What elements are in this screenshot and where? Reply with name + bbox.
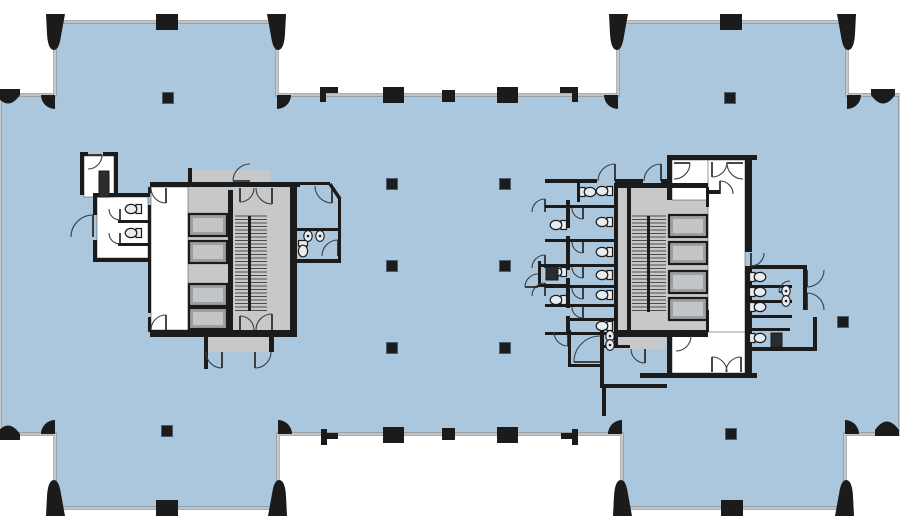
core-gray-area — [192, 170, 270, 183]
toilet-part — [550, 295, 562, 304]
wall-segment — [538, 284, 566, 287]
interior-column — [500, 343, 511, 354]
sink-drain — [609, 335, 612, 338]
toilet-part — [754, 333, 766, 342]
interior-column — [387, 343, 398, 354]
wall-segment — [148, 187, 151, 193]
wall-segment — [600, 330, 604, 388]
floor-plan — [0, 0, 900, 530]
wall-segment — [114, 152, 118, 195]
interior-column — [726, 429, 737, 440]
toilet-part — [754, 287, 766, 296]
toilet-icon — [298, 241, 307, 257]
wall-segment — [721, 500, 743, 516]
stair-divider — [248, 216, 251, 311]
wall-segment — [497, 427, 518, 443]
toilet-icon — [750, 302, 766, 311]
toilet-part — [125, 228, 137, 237]
wall-segment — [615, 183, 708, 188]
wall-segment — [538, 261, 541, 287]
stair-divider — [647, 216, 650, 312]
wall-segment — [545, 205, 614, 208]
wall-segment — [118, 220, 148, 223]
interior-column — [838, 317, 849, 328]
wall-segment — [752, 347, 817, 351]
wall-segment — [640, 373, 757, 378]
toilet-icon — [125, 204, 141, 213]
wall-segment — [228, 190, 233, 330]
toilet-icon — [750, 272, 766, 281]
toilet-part — [754, 272, 766, 281]
toilet-part — [550, 220, 562, 229]
wall-segment — [93, 193, 97, 215]
elevator-car-interior — [673, 219, 703, 233]
interior-column — [500, 179, 511, 190]
toilet-part — [596, 247, 608, 256]
toilet-part — [298, 245, 307, 257]
wall-segment — [602, 388, 606, 416]
wall-segment — [614, 183, 618, 345]
wall-segment — [269, 337, 274, 352]
wall-segment — [615, 330, 708, 337]
wall-segment — [545, 239, 614, 242]
sink-drain — [785, 300, 788, 303]
wall-segment — [297, 182, 330, 185]
toilet-icon — [596, 270, 612, 279]
floor-plan-canvas — [0, 0, 900, 530]
wall-segment — [667, 155, 757, 160]
sink-drain — [307, 235, 310, 238]
core-gray-area — [269, 187, 290, 330]
wall-segment — [566, 318, 614, 321]
interior-column — [387, 179, 398, 190]
elevator-car-interior — [193, 218, 223, 232]
wall-segment — [813, 317, 817, 351]
wall-segment — [93, 258, 150, 262]
elevator-car-interior — [673, 246, 703, 260]
wall-segment — [752, 328, 790, 331]
wall-segment — [297, 259, 341, 263]
wall-segment — [80, 152, 88, 156]
toilet-icon — [596, 247, 612, 256]
elevator-car-interior — [193, 288, 223, 302]
toilet-icon — [550, 295, 566, 304]
wall-segment — [150, 330, 297, 337]
wall-segment — [708, 190, 720, 194]
toilet-part — [596, 321, 608, 330]
toilet-icon — [750, 287, 766, 296]
wall-segment — [752, 315, 792, 318]
toilet-part — [584, 187, 596, 196]
interior-column — [500, 261, 511, 272]
wall-segment — [600, 384, 667, 388]
interior-column — [162, 426, 173, 437]
toilet-part — [125, 204, 137, 213]
wall-segment — [572, 87, 578, 102]
interior-column — [725, 93, 736, 104]
sink-drain — [785, 290, 788, 293]
wall-segment — [720, 14, 742, 30]
room-white — [672, 332, 745, 373]
wall-segment — [745, 266, 752, 375]
wall-segment — [156, 500, 178, 516]
wall-segment — [667, 155, 672, 200]
toilet-part — [596, 186, 608, 195]
toilet-icon — [596, 290, 612, 299]
wall-segment — [667, 332, 672, 377]
toilet-icon — [125, 228, 141, 237]
toilet-icon — [596, 186, 612, 195]
wall-segment — [661, 179, 667, 183]
service-fixture — [771, 333, 782, 347]
wall-segment — [572, 429, 578, 445]
wall-segment — [80, 152, 84, 195]
wall-segment — [320, 87, 338, 93]
service-fixture — [546, 267, 558, 280]
wall-segment — [290, 182, 297, 337]
wall-segment — [615, 179, 643, 183]
wall-segment — [442, 90, 455, 102]
wall-segment — [568, 364, 600, 367]
interior-column — [387, 261, 398, 272]
toilet-part — [596, 290, 608, 299]
room-white — [151, 187, 188, 330]
wall-segment — [752, 265, 807, 269]
elevator-car-interior — [673, 302, 703, 316]
toilet-icon — [596, 321, 612, 330]
wall-segment — [442, 428, 455, 440]
toilet-icon — [596, 217, 612, 226]
service-fixture — [99, 171, 109, 197]
interior-column — [163, 93, 174, 104]
wall-segment — [321, 433, 338, 439]
wall-segment — [627, 187, 631, 332]
wall-segment — [383, 87, 404, 103]
toilet-part — [596, 270, 608, 279]
toilet-part — [754, 302, 766, 311]
toilet-icon — [580, 187, 596, 196]
sink-drain — [319, 235, 322, 238]
elevator-car-interior — [673, 275, 703, 289]
wall-segment — [297, 228, 338, 231]
core-gray-area — [205, 337, 273, 352]
wall-segment — [118, 243, 148, 246]
wall-segment — [706, 310, 709, 332]
elevator-car-interior — [193, 312, 223, 325]
elevator-car-interior — [193, 245, 223, 259]
sink-drain — [609, 344, 612, 347]
wall-segment — [383, 427, 404, 443]
wall-segment — [545, 179, 597, 183]
toilet-icon — [750, 333, 766, 342]
wall-segment — [745, 155, 752, 252]
wall-segment — [497, 87, 518, 103]
wall-segment — [188, 168, 192, 184]
toilet-icon — [550, 220, 566, 229]
wall-segment — [156, 14, 178, 30]
toilet-part — [596, 217, 608, 226]
wall-segment — [150, 182, 300, 187]
